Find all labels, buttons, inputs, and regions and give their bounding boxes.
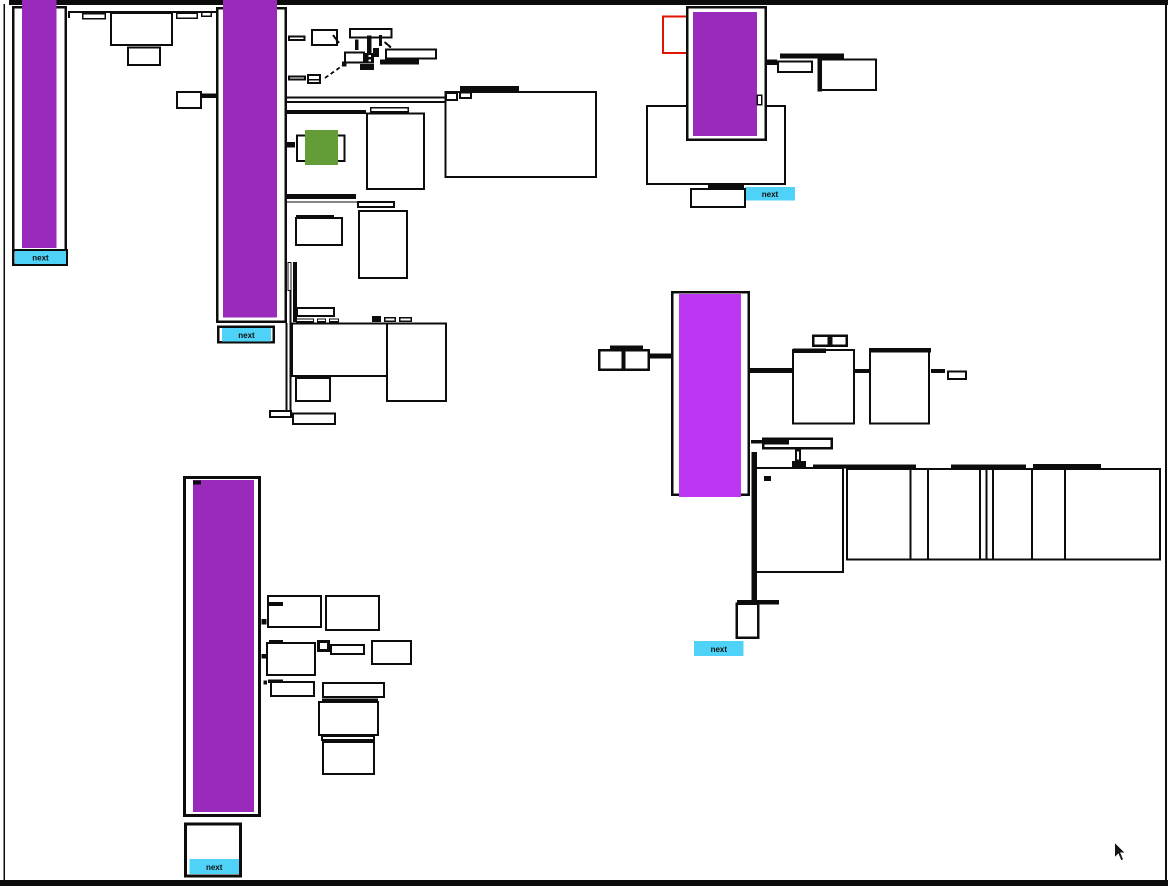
svg-text:next: next: [32, 254, 49, 263]
svg-text:next: next: [238, 331, 255, 340]
svg-text:next: next: [762, 190, 779, 199]
svg-text:next: next: [711, 645, 728, 654]
svg-text:next: next: [206, 863, 223, 872]
